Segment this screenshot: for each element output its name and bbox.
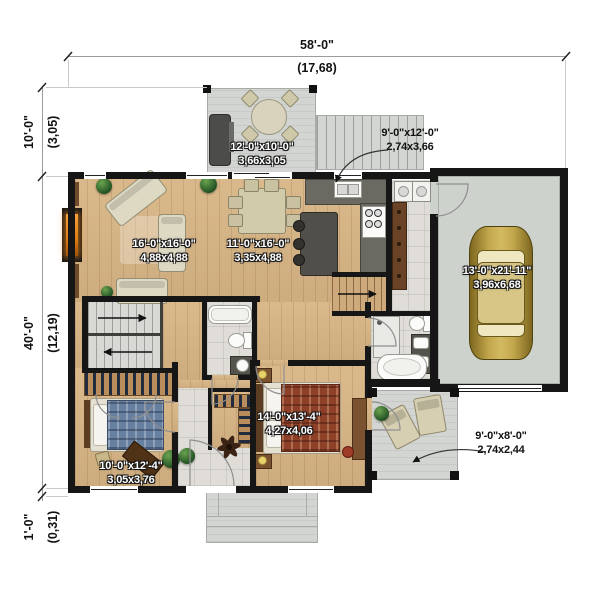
porch-step-edge bbox=[206, 526, 318, 527]
dining-chair bbox=[244, 179, 259, 192]
dining-chair bbox=[286, 196, 301, 209]
patio-post bbox=[368, 471, 377, 480]
wall bbox=[172, 362, 178, 402]
bar-stool bbox=[293, 220, 305, 232]
wall bbox=[386, 172, 392, 272]
wall bbox=[365, 302, 371, 318]
toilet-bowl bbox=[228, 333, 245, 348]
stair-rail-wall bbox=[160, 302, 163, 368]
house-depth-metric: (12,19) bbox=[46, 313, 60, 353]
bedroom-label: 10'-0"x12'-4" 3,05x3,76 bbox=[69, 459, 193, 487]
car-rear-window bbox=[477, 324, 525, 337]
deck-post bbox=[309, 85, 317, 93]
master-bedroom-size-imperial: 14'-0"x13'-4" bbox=[226, 410, 352, 424]
kitchen-size-metric: 2,74x3,66 bbox=[350, 140, 470, 154]
plant bbox=[96, 178, 112, 194]
coat-hook bbox=[397, 274, 401, 278]
wall bbox=[68, 172, 75, 493]
vanity-sink bbox=[413, 337, 429, 349]
stove-burner bbox=[365, 209, 373, 217]
stove-burner bbox=[374, 209, 382, 217]
basement-staircase bbox=[332, 277, 386, 311]
dining-room-size-metric: 3,35x4,88 bbox=[198, 251, 318, 265]
overall-width-metric: (17,68) bbox=[68, 61, 566, 75]
house-depth-imperial: 40'-0" bbox=[22, 316, 36, 350]
walkin-hangers bbox=[214, 394, 252, 408]
garage-door bbox=[458, 385, 542, 391]
sink-basin bbox=[348, 184, 359, 195]
master-bedroom-label: 14'-0"x13'-4" 4,27x4,06 bbox=[226, 410, 352, 438]
wall bbox=[82, 296, 260, 302]
wall bbox=[202, 302, 207, 380]
desk-chair bbox=[342, 446, 354, 458]
window bbox=[84, 172, 106, 179]
wall bbox=[430, 214, 438, 392]
porch-side-line bbox=[218, 490, 219, 516]
wall bbox=[82, 302, 88, 370]
porch-side-line bbox=[306, 490, 307, 516]
door-threshold bbox=[260, 360, 288, 366]
window bbox=[334, 172, 362, 179]
wall bbox=[202, 375, 212, 380]
hall-floor bbox=[212, 375, 238, 380]
floor-plan: 58'-0" (17,68) 10'-0" (3,05) 40'-0" (12,… bbox=[0, 0, 600, 600]
wall bbox=[365, 379, 440, 387]
dining-table bbox=[238, 188, 286, 234]
extension-line bbox=[46, 176, 68, 177]
coat-hook bbox=[397, 242, 401, 246]
stair-railing bbox=[88, 333, 160, 336]
stove-burner bbox=[365, 220, 373, 228]
plant bbox=[374, 406, 389, 421]
wall bbox=[288, 360, 371, 366]
vanity-sink bbox=[236, 359, 249, 372]
patio-sliding-door bbox=[232, 172, 292, 179]
coat-hook bbox=[397, 226, 401, 230]
wall bbox=[208, 388, 252, 392]
top-dimension-line bbox=[68, 56, 566, 57]
lamp bbox=[258, 456, 267, 465]
deck-table bbox=[251, 99, 287, 135]
coat-hook bbox=[397, 258, 401, 262]
wall bbox=[392, 311, 438, 316]
patio-post bbox=[368, 388, 377, 397]
dining-chair bbox=[228, 214, 243, 227]
deck-size-imperial: 12'-0"x10'-0" bbox=[202, 140, 322, 154]
wall bbox=[208, 388, 212, 450]
dining-room-size-imperial: 11'-0"x16'-0" bbox=[198, 237, 318, 251]
coat-hook bbox=[397, 210, 401, 214]
patio-post bbox=[450, 471, 459, 480]
patio-label: 9'-0"x8'-0" 2,74x2,44 bbox=[446, 429, 556, 457]
patio-size-imperial: 9'-0"x8'-0" bbox=[446, 429, 556, 443]
hall-floor bbox=[178, 380, 257, 388]
porch-step-edge bbox=[206, 516, 318, 517]
wall bbox=[365, 430, 372, 493]
door-threshold bbox=[430, 182, 438, 214]
garage-label: 13'-0"x21'-11" 3,96x6,68 bbox=[437, 264, 557, 292]
kitchen-label: 9'-0"x12'-0" 2,74x3,66 bbox=[350, 126, 470, 154]
sink-basin bbox=[337, 184, 348, 195]
patio-size-metric: 2,74x2,44 bbox=[446, 443, 556, 457]
extension-line bbox=[565, 60, 566, 168]
wall bbox=[365, 346, 371, 387]
extension-line bbox=[46, 87, 207, 88]
dryer bbox=[412, 181, 431, 202]
left-dimension-line bbox=[42, 88, 43, 501]
bedroom-size-metric: 3,05x3,76 bbox=[69, 473, 193, 487]
bedroom-size-imperial: 10'-0"x12'-4" bbox=[69, 459, 193, 473]
washer bbox=[394, 181, 413, 202]
garage-size-imperial: 13'-0"x21'-11" bbox=[437, 264, 557, 278]
wall bbox=[332, 311, 392, 316]
stove-burner bbox=[374, 220, 382, 228]
shower-head bbox=[377, 320, 382, 325]
toilet-bowl bbox=[409, 316, 425, 331]
wall bbox=[82, 368, 178, 373]
dining-chair bbox=[264, 179, 279, 192]
extension-line bbox=[46, 496, 68, 497]
wall bbox=[560, 168, 568, 392]
window bbox=[186, 172, 228, 179]
lamp bbox=[258, 370, 267, 379]
window bbox=[90, 486, 138, 493]
wall bbox=[430, 168, 568, 176]
kitchen-size-imperial: 9'-0"x12'-0" bbox=[350, 126, 470, 140]
freestanding-tub-inner bbox=[383, 358, 421, 376]
deck-depth-imperial: 10'-0" bbox=[22, 115, 36, 149]
front-door-opening bbox=[186, 486, 236, 493]
deck-depth-metric: (3,05) bbox=[46, 116, 60, 149]
deck-label: 12'-0"x10'-0" 3,66x3,05 bbox=[202, 140, 322, 168]
patio-post bbox=[450, 388, 459, 397]
dining-chair bbox=[228, 196, 243, 209]
extension-line bbox=[46, 488, 68, 489]
wall bbox=[386, 272, 392, 316]
pillow bbox=[93, 404, 108, 446]
dining-room-label: 11'-0"x16'-0" 3,35x4,88 bbox=[198, 237, 318, 265]
bathtub-inner bbox=[211, 308, 249, 321]
bedroom-closet-hangers bbox=[84, 370, 174, 396]
garage-size-metric: 3,96x6,68 bbox=[437, 278, 557, 292]
window bbox=[288, 486, 334, 493]
step-depth-imperial: 1'-0" bbox=[22, 514, 36, 541]
overall-width-imperial: 58'-0" bbox=[68, 38, 566, 52]
master-bedroom-size-metric: 4,27x4,06 bbox=[226, 424, 352, 438]
deck-size-metric: 3,66x3,05 bbox=[202, 154, 322, 168]
step-depth-metric: (0,31) bbox=[46, 511, 60, 544]
wall bbox=[332, 272, 392, 277]
